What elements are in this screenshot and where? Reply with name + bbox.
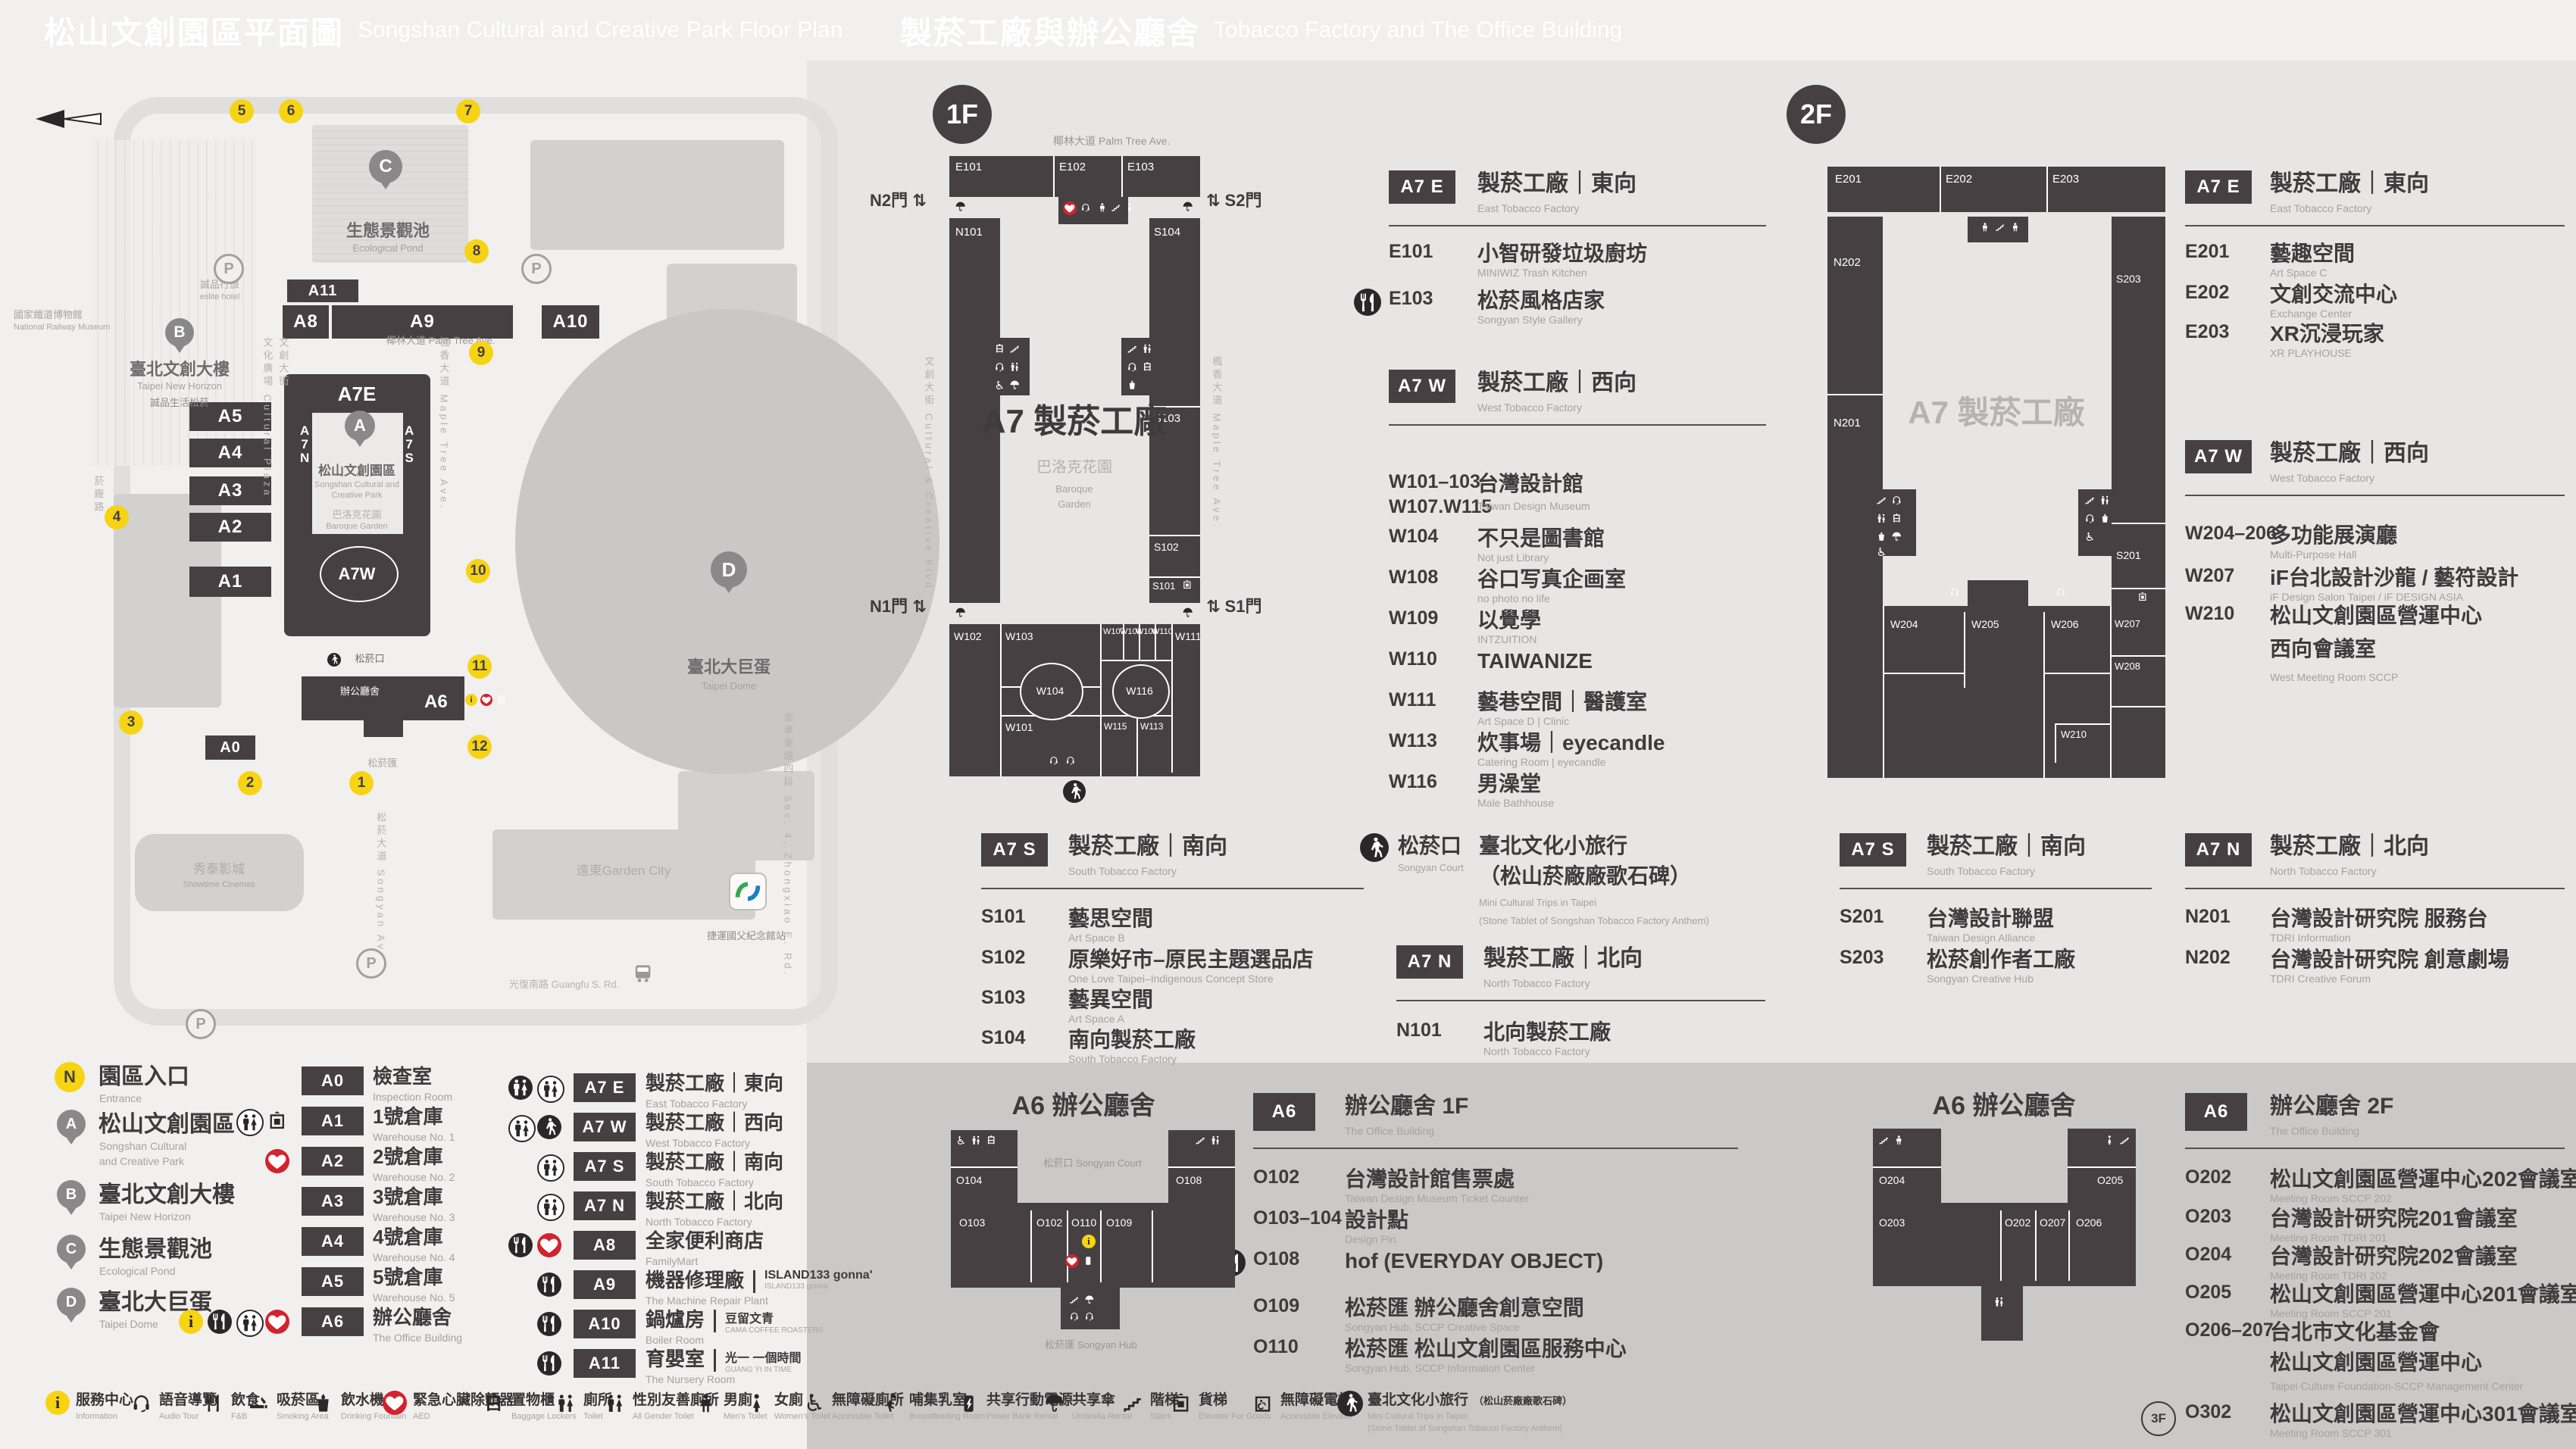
legend-place-en: Entrance — [99, 1092, 142, 1105]
room-code: S103 — [981, 987, 1025, 1010]
legend-brand-name: 豆留文青 — [725, 1308, 823, 1326]
fnb-icon — [508, 1233, 533, 1257]
legend-building-en: North Tobacco Factory — [646, 1216, 752, 1229]
room-name-en: South Tobacco Factory — [1068, 1053, 1177, 1066]
toilet-icon — [508, 1115, 536, 1142]
section-title-zh: 辦公廳舍 1F — [1345, 1093, 1468, 1120]
plan-garden-en1: Baroque — [1055, 483, 1093, 495]
a6-room-O109: O109 — [1106, 1216, 1132, 1229]
pin-A: A — [345, 411, 375, 441]
legend-place-en: Songshan Cultural — [99, 1140, 186, 1153]
audio-icon — [1080, 201, 1092, 214]
a6-line — [1152, 1210, 1153, 1282]
facility-label-zh: 臺北文化小旅行 — [1368, 1392, 1468, 1409]
allgender-icon — [602, 1391, 628, 1416]
legend-building-en: Warehouse No. 3 — [373, 1211, 455, 1224]
legend-building-en: Warehouse No. 2 — [373, 1171, 455, 1184]
legend-building-en: Warehouse No. 5 — [373, 1291, 455, 1304]
legend-badge-A0: A0 — [302, 1066, 364, 1095]
aed-icon — [383, 1391, 407, 1415]
showtime-en: Showtime Cinemas — [183, 880, 255, 890]
goodsel-icon — [265, 1109, 289, 1133]
info-icon: i — [1082, 1235, 1096, 1248]
room-name-zh: iF台北設計沙龍 / 藝符設計 — [2270, 565, 2518, 590]
showtime-zh: 秀泰影城 — [193, 862, 245, 877]
room-name-zh: XR沉浸玩家 — [2270, 321, 2384, 346]
plan-room-S203: S203 — [2116, 273, 2141, 286]
plan-line — [1102, 660, 1171, 661]
legend-building-name: 製菸工廠｜東向 — [646, 1072, 783, 1095]
wheelchair-icon: ♿ — [2084, 530, 2096, 543]
accessible-icon: ♿ — [802, 1391, 827, 1416]
room-name-en: XR PLAYHOUSE — [2270, 347, 2352, 360]
wheelchair-icon: ♿ — [955, 1134, 968, 1147]
room-code: O202 — [2185, 1166, 2231, 1189]
section-title-en: West Tobacco Factory — [1477, 401, 1582, 414]
header-left: 松山文創園區平面圖 Songshan Cultural and Creative… — [0, 0, 856, 61]
plan-room-W210: W210 — [2061, 729, 2087, 740]
plan-wall — [1827, 606, 2165, 778]
person-icon — [2009, 221, 2021, 233]
a6-hub-label: 松菸匯 Songyan Hub — [1045, 1339, 1136, 1351]
pin-D: D — [711, 551, 747, 588]
a6-line — [1030, 1210, 1032, 1282]
street-yanchang: 菸廠路 — [92, 476, 104, 514]
audio-icon — [1048, 754, 1060, 767]
room-name-en: Art Space C — [2270, 267, 2327, 279]
fnb-icon — [537, 1312, 561, 1336]
parking-icon: P — [356, 948, 386, 979]
plan-room-W110: W110 — [1152, 627, 1173, 637]
wheelchair-icon: ♿ — [993, 379, 1006, 392]
section-title-zh: 製菸工廠｜北向 — [1483, 945, 1643, 972]
room-name-en: Meeting Room TDRI 202 — [2270, 1269, 2387, 1282]
brand-divider — [714, 1349, 716, 1372]
gate-s1: ⇅ S1門 — [1206, 597, 1261, 617]
room-code: W207 — [2185, 565, 2234, 588]
plan-room-W103: W103 — [1005, 630, 1033, 643]
room-name-zh: 不只是圖書館 — [1477, 526, 1605, 551]
entrance-4: 4 — [105, 505, 129, 529]
legend-building-en: Warehouse No. 4 — [373, 1251, 455, 1264]
room-code: N201 — [2185, 906, 2231, 929]
street-cultural-plaza: 文化廣場 Cultural Plaza — [261, 337, 273, 498]
floor-plan-poster: 松山文創園區平面圖 Songshan Cultural and Creative… — [0, 0, 2576, 1449]
section-badge: A7 E — [1389, 170, 1455, 204]
plan-line — [1149, 576, 1200, 578]
legend-building-en: East Tobacco Factory — [646, 1098, 747, 1110]
plan-room-E103: E103 — [1127, 161, 1154, 174]
audio-icon — [1890, 494, 1903, 507]
toilet-icon — [508, 1076, 533, 1100]
brand-divider — [714, 1310, 716, 1332]
room-code: O205 — [2185, 1282, 2231, 1304]
legend-badge-A11: A11 — [574, 1349, 636, 1378]
a6-room-O108: O108 — [1176, 1174, 1202, 1187]
room-code: O302 — [2185, 1401, 2231, 1424]
entrance-1: 1 — [349, 771, 374, 795]
room-name-en: Songyan Creative Hub — [1927, 973, 2034, 985]
toilet-icon — [1141, 342, 1154, 355]
room-code: W104 — [1389, 526, 1438, 548]
facility-label-zh: 貨梯 — [1199, 1392, 1227, 1409]
facility-label-en: Mini Cultural Trips in Taipei — [1368, 1412, 1467, 1422]
legend-brand: 光一 一個時間GUANG YI IN TIME — [725, 1348, 801, 1374]
legend-building-name: 3號倉庫 — [373, 1185, 442, 1209]
court-zh: 松菸口 — [1398, 833, 1462, 858]
room-name-zh: 台灣設計研究院201會議室 — [2270, 1206, 2518, 1231]
section-title-en: The Office Building — [2270, 1125, 2359, 1138]
legend-building-name: 辦公廳舍 — [373, 1306, 452, 1329]
stairs-icon — [1120, 1391, 1146, 1416]
section-badge: A7 N — [2185, 833, 2252, 867]
room-code: O203 — [2185, 1206, 2231, 1229]
room-name-zh: 台灣設計研究院 創意劇場 — [2270, 947, 2509, 972]
room-name-zh2: 西向會議室 — [2270, 636, 2376, 661]
taipei-dome-shape — [515, 309, 939, 774]
plan-street-right: 楓香大道 Maple Tree Ave. — [1211, 356, 1222, 529]
legend-place-zh: 生態景觀池 — [98, 1236, 212, 1263]
room-name-en: Male Bathhouse — [1477, 797, 1554, 810]
facility-label-en: Toilet — [583, 1412, 603, 1422]
section-badge: A7 E — [2185, 170, 2252, 204]
audio-icon — [2055, 586, 2067, 598]
legend-building-name: 檢查室 — [373, 1065, 432, 1088]
room-name-en: Art Space B — [1068, 932, 1125, 945]
plan-room-W205: W205 — [1971, 618, 1999, 631]
legend-building-name: 機器修理廠ISLAND133 gonna'ISLAND133 gonna' — [646, 1269, 873, 1293]
legend-place-en: Taipei Dome — [99, 1318, 158, 1331]
room-code: S203 — [1840, 947, 1884, 970]
gate-n1: N1門 ⇅ — [870, 597, 927, 617]
bus-icon — [630, 960, 656, 986]
legend-badge-A8: A8 — [574, 1231, 636, 1260]
room-name-zh: 藝思空間 — [1068, 906, 1153, 931]
section-title-en: Tobacco Factory and The Office Building — [1214, 17, 1622, 43]
page-title-zh: 松山文創園區平面圖 — [44, 8, 344, 54]
metro-label: 捷運國父紀念館站 — [707, 930, 786, 942]
facility-label-zh: 飲水機 — [341, 1392, 384, 1409]
room-name-zh: 文創交流中心 — [2270, 282, 2397, 307]
toilet-icon — [537, 1194, 564, 1221]
a6-line — [951, 1166, 1018, 1168]
a6-line — [1067, 1210, 1068, 1282]
section-title-en: North Tobacco Factory — [2270, 865, 2377, 878]
section-title-en: South Tobacco Factory — [1068, 865, 1177, 878]
legend-place-zh: 臺北文創大樓 — [98, 1182, 235, 1208]
legend-building-en: South Tobacco Factory — [646, 1176, 754, 1189]
legend-brand-name: 光一 一個時間 — [725, 1348, 801, 1366]
room-name-en: Exchange Center — [2270, 308, 2352, 320]
facility-label-zh: 服務中心 — [76, 1392, 133, 1409]
section-divider — [2185, 495, 2565, 496]
section-title-zh: 製菸工廠｜南向 — [1068, 833, 1227, 860]
womens-icon — [2103, 1134, 2116, 1147]
plan-room-W204: W204 — [1890, 618, 1918, 631]
a6-room-O202: O202 — [2005, 1216, 2030, 1229]
plan-room-W116: W116 — [1126, 685, 1153, 698]
audio-icon — [1126, 361, 1139, 373]
floor-badge-2F: 2F — [1787, 85, 1846, 144]
room-name-zh: 藝巷空間｜醫護室 — [1477, 689, 1647, 714]
map-court-icon — [327, 653, 341, 667]
plan-room-W115: W115 — [1104, 721, 1127, 732]
accel-icon — [1250, 1391, 1276, 1416]
legend-badge-A4: A4 — [302, 1227, 364, 1256]
legend-badge-A3: A3 — [302, 1187, 364, 1216]
room-name-en: Songyan Hub, SCCP Creative Space — [1345, 1321, 1520, 1334]
gate-n2: N2門 ⇅ — [870, 191, 927, 211]
street-maple: 楓香大道 Maple Tree Ave. — [438, 337, 449, 511]
room-name-en: Songyan Style Gallery — [1477, 314, 1583, 326]
legend-brand-name: ISLAND133 gonna' — [764, 1269, 873, 1282]
room-name-zh: 台北市文化基金會 — [2270, 1319, 2440, 1344]
room-code: W210 — [2185, 603, 2234, 626]
legend-building-name: 4號倉庫 — [373, 1226, 442, 1249]
room-name-zh: 谷口写真企画室 — [1477, 567, 1626, 592]
stairs-icon — [1875, 494, 1888, 507]
legend-building-name: 鍋爐房豆留文青CAMA COFFEE ROASTERS — [646, 1308, 823, 1335]
plan-room-S201: S201 — [2116, 549, 2141, 562]
stairs-icon — [2118, 1134, 2131, 1147]
legend-building-name: 製菸工廠｜南向 — [646, 1151, 783, 1174]
legend-building-zh: 4號倉庫 — [373, 1226, 442, 1249]
room-name-zh: 多功能展演廳 — [2270, 523, 2397, 548]
womens-icon — [1124, 201, 1136, 214]
room-name-en: Meeting Room SCCP 301 — [2270, 1427, 2392, 1440]
minitrip-icon — [537, 1115, 561, 1139]
room-name-en: iF Design Salon Taipei / iF DESIGN ASIA — [2270, 591, 2463, 604]
a6-line — [2068, 1166, 2136, 1168]
legend-marker-D: D — [57, 1288, 86, 1316]
section-badge: A7 W — [1389, 370, 1455, 403]
room-name-zh: 松菸創作者工廠 — [1927, 947, 2075, 972]
locker-icon — [993, 342, 1006, 355]
room-name-zh: 設計點 — [1345, 1207, 1408, 1232]
fnb-icon — [537, 1351, 561, 1376]
room-name-zh: 藝趣空間 — [2270, 241, 2355, 266]
court-name-en: Mini Cultural Trips in Taipei — [1479, 897, 1596, 908]
legend-building-en: The Nursery Room — [646, 1373, 735, 1386]
plan-room-N201: N201 — [1834, 417, 1861, 430]
court-name-zh: 臺北文化小旅行 — [1479, 833, 1627, 858]
legend-building-zh: 辦公廳舍 — [373, 1306, 452, 1329]
a6-room-O102: O102 — [1036, 1216, 1062, 1229]
plan-line — [2043, 612, 2045, 778]
fnb-icon — [201, 1391, 227, 1416]
plan-line — [1053, 156, 1055, 197]
section-title-zh: 製菸工廠｜東向 — [1477, 170, 1637, 197]
a6-room-O110: O110 — [1071, 1216, 1096, 1229]
plan-street-top: 椰林大道 Palm Tree Ave. — [1053, 135, 1171, 148]
a6-room-O206: O206 — [2076, 1216, 2102, 1229]
dome-label-zh: 臺北大巨蛋 — [687, 657, 771, 677]
entrance-11: 11 — [467, 654, 492, 679]
map-bar-A10: A10 — [542, 305, 599, 339]
audio-icon — [1064, 754, 1077, 767]
goodsel-icon — [1181, 579, 1193, 591]
a6-line — [1100, 1210, 1102, 1282]
room-name-zh: 松山文創園區營運中心301會議室 — [2270, 1401, 2576, 1426]
room-name-zh: 松山文創園區營運中心201會議室 — [2270, 1282, 2576, 1307]
section-title-en: The Office Building — [1345, 1125, 1434, 1138]
entrance-2: 2 — [238, 771, 262, 795]
section-title-en: South Tobacco Factory — [1927, 865, 2035, 878]
toilet-icon — [1993, 1295, 2006, 1309]
pin-B: B — [165, 318, 194, 347]
section-title-zh: 製菸工廠｜北向 — [2270, 833, 2429, 860]
umbrella-icon — [1008, 379, 1021, 392]
section-divider — [2185, 1148, 2565, 1149]
room-code: O103–104 — [1253, 1207, 1342, 1230]
room-name-en: Art Space D | Clinic — [1477, 715, 1569, 728]
plan-line — [2046, 167, 2048, 212]
legend-brand: 豆留文青CAMA COFFEE ROASTERS — [725, 1308, 823, 1335]
aed-icon — [265, 1310, 289, 1334]
legend-badge-A7 W: A7 W — [574, 1113, 636, 1141]
legend-building-en: Warehouse No. 1 — [373, 1131, 455, 1144]
court-en: Songyan Court — [1398, 862, 1464, 873]
info-icon: i — [465, 694, 477, 706]
legend-badge-A7 S: A7 S — [574, 1152, 636, 1181]
map-a7e-label: A7E — [338, 383, 377, 406]
a6-room-O205: O205 — [2097, 1174, 2123, 1187]
legend-badge-A7 E: A7 E — [574, 1073, 636, 1102]
legend-building-en: The Machine Repair Plant — [646, 1294, 768, 1307]
plan-line — [1136, 715, 1138, 776]
map-bar-A1: A1 — [189, 567, 271, 597]
plan-room-N101: N101 — [955, 226, 983, 239]
facility-label-zh2: （松山菸廠廠歌石碑） — [1474, 1395, 1572, 1407]
room-name-en: Taiwan Design Alliance — [1927, 932, 2035, 945]
room-name-en: One Love Taipei–Indigenous Concept Store — [1068, 973, 1274, 985]
toilet-icon — [236, 1310, 264, 1337]
aed-icon — [537, 1233, 561, 1257]
plan-line — [1000, 624, 1002, 776]
toilet-icon — [537, 1076, 564, 1103]
fnb-icon — [208, 1310, 232, 1334]
entrance-7: 7 — [456, 99, 480, 123]
plan-line — [1171, 624, 1173, 773]
page-title-en: Songshan Cultural and Creative Park Floo… — [358, 17, 843, 43]
legend-building-zh: 製菸工廠｜西向 — [646, 1111, 783, 1135]
room-name-zh: 松菸匯 辦公廳舍創意空間 — [1345, 1295, 1584, 1320]
room-name-zh: 台灣設計研究院 服務台 — [2270, 906, 2488, 931]
section-badge: A7 W — [2185, 440, 2252, 473]
room-code: W116 — [1389, 771, 1437, 794]
room-name-en: Not just Library — [1477, 551, 1549, 564]
room-name-zh: 松菸風格店家 — [1477, 288, 1605, 313]
stairs-icon — [1110, 201, 1122, 214]
womens-icon — [744, 1391, 770, 1416]
legend-place-en: Ecological Pond — [99, 1265, 175, 1278]
plan-line — [2055, 725, 2056, 763]
plan-room-W104: W104 — [1036, 685, 1064, 698]
map-a7n-label: A 7 N — [300, 424, 309, 465]
map-bar-A2: A2 — [189, 513, 271, 542]
plan-room-N202: N202 — [1834, 256, 1861, 270]
legend-building-name: 全家便利商店 — [646, 1229, 764, 1253]
room-name-en: Multi-Purpose Hall — [2270, 548, 2356, 561]
section-badge: A7 S — [981, 833, 1048, 867]
room-name-zh: TAIWANIZE — [1477, 648, 1593, 673]
a6-line — [1873, 1166, 1941, 1168]
aed-icon — [480, 694, 492, 706]
legend-building-zh: 1號倉庫 — [373, 1105, 442, 1129]
plan-room-W102: W102 — [954, 630, 982, 643]
room-name-zh: 台灣設計聯盟 — [1927, 906, 2054, 931]
map-bar-A8: A8 — [283, 305, 329, 339]
a6-1f-title: A6 辦公廳舍 — [1012, 1091, 1155, 1121]
legend-building-zh: 3號倉庫 — [373, 1185, 442, 1209]
legend-marker-A: A — [57, 1110, 86, 1138]
legend-building-zh: 製菸工廠｜南向 — [646, 1151, 783, 1174]
a6-room-O204: O204 — [1879, 1174, 1905, 1187]
room-code: S102 — [981, 947, 1025, 970]
plan-line — [1883, 673, 1964, 674]
section-title-en: East Tobacco Factory — [2270, 202, 2371, 215]
entrance-6: 6 — [279, 99, 303, 123]
legend-building-name: 製菸工廠｜北向 — [646, 1190, 783, 1213]
legend-brand-sub: GUANG YI IN TIME — [725, 1366, 801, 1374]
room-name-en: no photo no life — [1477, 592, 1550, 605]
room-name-en: Catering Room | eyecandle — [1477, 756, 1605, 769]
map-bar-A3: A3 — [189, 476, 271, 505]
plan-line — [2112, 655, 2165, 657]
water-icon — [1126, 379, 1139, 392]
water-icon — [2099, 512, 2112, 525]
section-title-zh: 製菸工廠｜南向 — [1927, 833, 2086, 860]
facility-label-en2: (Stone Tablet of Songshan Tobacco Factor… — [1368, 1424, 1562, 1434]
plan-line — [1149, 535, 1200, 536]
facility-label-zh: 女廁 — [774, 1392, 803, 1409]
dome-label-en: Taipei Dome — [702, 680, 756, 692]
info-icon: i — [179, 1310, 203, 1334]
section-divider — [2185, 225, 2565, 226]
legend-building-name: 育嬰室光一 一個時間GUANG YI IN TIME — [646, 1348, 801, 1374]
room-code: E201 — [2185, 241, 2229, 264]
section-title-zh: 製菸工廠｜東向 — [2270, 170, 2429, 197]
plan-room-E201: E201 — [1835, 173, 1862, 186]
stairs-icon — [1068, 1294, 1080, 1306]
header-right: 製菸工廠與辦公廳舍 Tobacco Factory and The Office… — [856, 0, 2576, 61]
gate-s2: ⇅ S2門 — [1206, 191, 1261, 211]
section-title-en: North Tobacco Factory — [1483, 977, 1590, 990]
room-code: W101–103 — [1389, 471, 1480, 494]
aed-icon — [1063, 201, 1077, 215]
section-badge: A7 S — [1840, 833, 1906, 867]
audio-icon — [1949, 586, 1961, 598]
locker-icon — [496, 694, 508, 706]
parking-icon: P — [186, 1009, 216, 1039]
plan-center-label: A7 製菸工廠 — [982, 402, 1167, 442]
room-code: W108 — [1389, 567, 1438, 589]
plan-room-E101: E101 — [955, 161, 982, 174]
room-code: W113 — [1389, 730, 1437, 753]
mens-icon — [693, 1391, 719, 1416]
floor-badge-1F: 1F — [933, 85, 992, 144]
powerbank-icon — [956, 1391, 982, 1416]
legend-badge-A1: A1 — [302, 1107, 364, 1135]
a6-room-O104: O104 — [956, 1174, 982, 1187]
legend-marker-B: B — [57, 1180, 86, 1209]
map-bar-A11: A11 — [287, 279, 358, 302]
plan-line — [1883, 606, 1884, 778]
room-name-zh: 小智研發垃圾廚坊 — [1477, 241, 1647, 266]
map-building — [530, 140, 784, 250]
toilet-icon — [970, 1134, 983, 1147]
section-title-en: East Tobacco Factory — [1477, 202, 1579, 215]
